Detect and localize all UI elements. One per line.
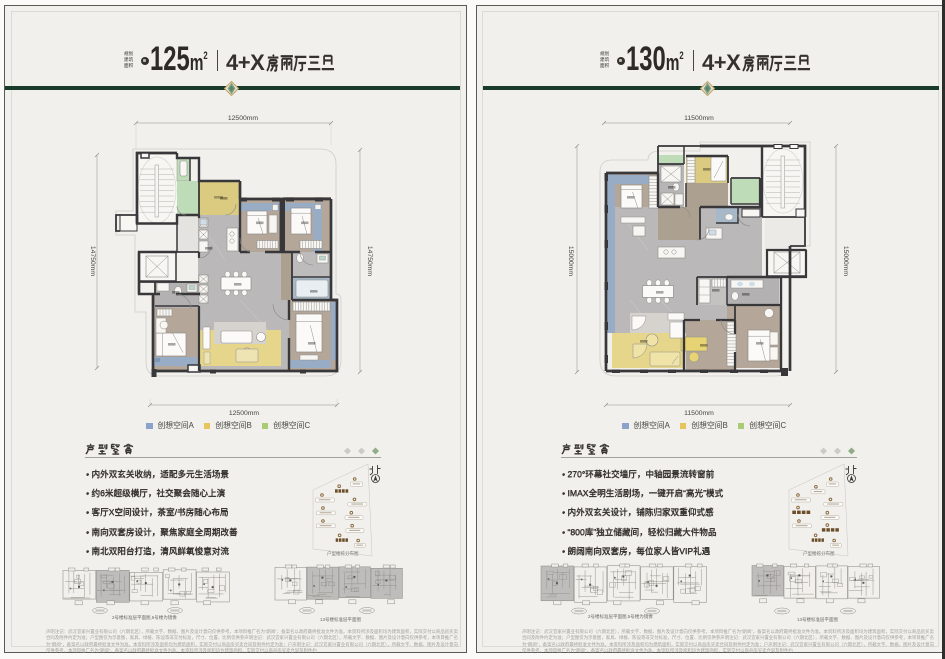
svg-text:14750mm: 14750mm (89, 246, 96, 277)
svg-text:15000mm: 15000mm (842, 246, 849, 277)
svg-text:11500mm: 11500mm (684, 115, 714, 122)
svg-text:15000mm: 15000mm (567, 246, 574, 277)
svg-text:14750mm: 14750mm (366, 246, 373, 277)
svg-text:12500mm: 12500mm (229, 410, 260, 417)
svg-text:11500mm: 11500mm (684, 410, 714, 417)
svg-text:12500mm: 12500mm (228, 115, 259, 122)
